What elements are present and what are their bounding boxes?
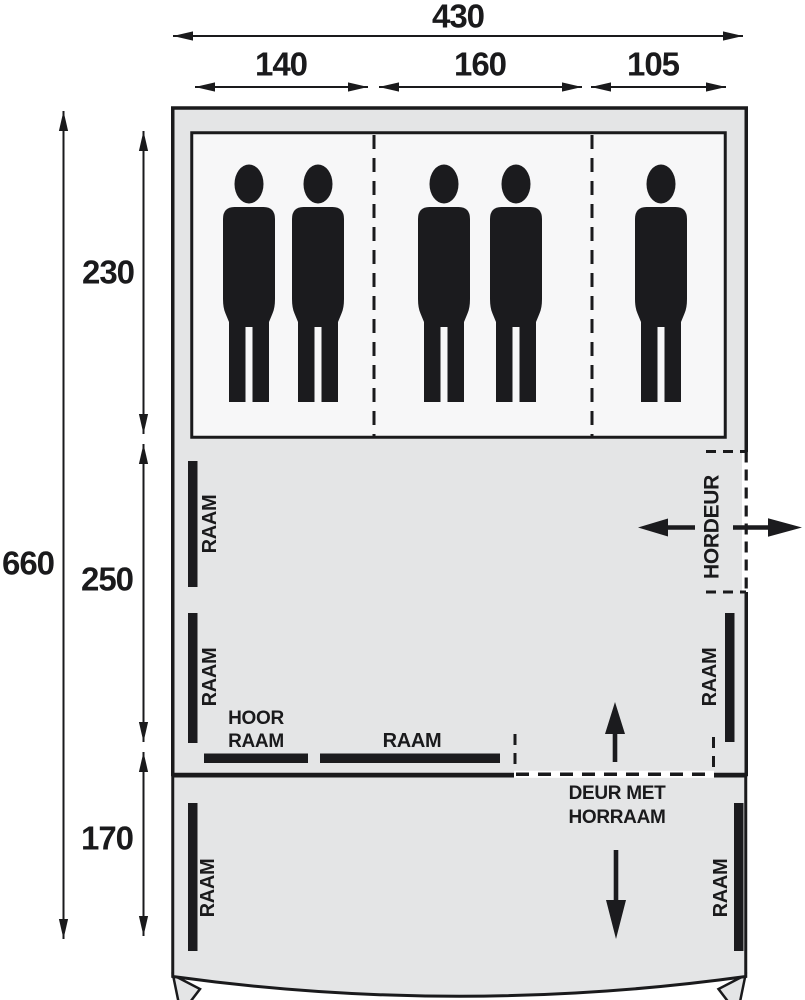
front-door-label-line1: DEUR MET [568, 782, 665, 806]
dim-160-label: 160 [454, 48, 506, 81]
dim-105-label: 105 [627, 48, 679, 81]
front-door-label-line2: HORRAAM [568, 806, 665, 830]
window-label-right-mid: RAAM [700, 648, 720, 707]
screen-door-label: HORDEUR [702, 475, 723, 579]
dim-total-height-label: 660 [2, 547, 54, 580]
window-label-left-lower: RAAM [200, 648, 220, 707]
window-label-left-upper: RAAM [200, 495, 220, 554]
high-window-label: HOOR RAAM [228, 707, 284, 753]
high-window-label-line1: HOOR [228, 707, 284, 730]
window-label-canopy-left: RAAM [198, 859, 218, 918]
window-label-canopy-right: RAAM [711, 859, 731, 918]
window-bar-left-upper [188, 461, 198, 587]
front-door-label: DEUR MET HORRAAM [568, 782, 665, 830]
dim-250-label: 250 [81, 563, 133, 596]
window-bar-bottom-left [204, 754, 308, 764]
dim-total-width-label: 430 [432, 0, 484, 33]
dim-230-label: 230 [82, 256, 134, 289]
window-bar-bottom-center [320, 754, 500, 764]
tent-floorplan-diagram: 430 140 160 105 660 230 250 170 RAAM RAA… [0, 0, 805, 1000]
window-bar-left-lower [188, 613, 198, 743]
high-window-label-line2: RAAM [228, 730, 284, 753]
window-bar-right-mid [725, 613, 735, 742]
window-label-bottom: RAAM [383, 731, 442, 751]
window-bar-canopy-right [734, 803, 744, 951]
dim-170-label: 170 [81, 822, 133, 855]
dim-140-label: 140 [255, 48, 307, 81]
